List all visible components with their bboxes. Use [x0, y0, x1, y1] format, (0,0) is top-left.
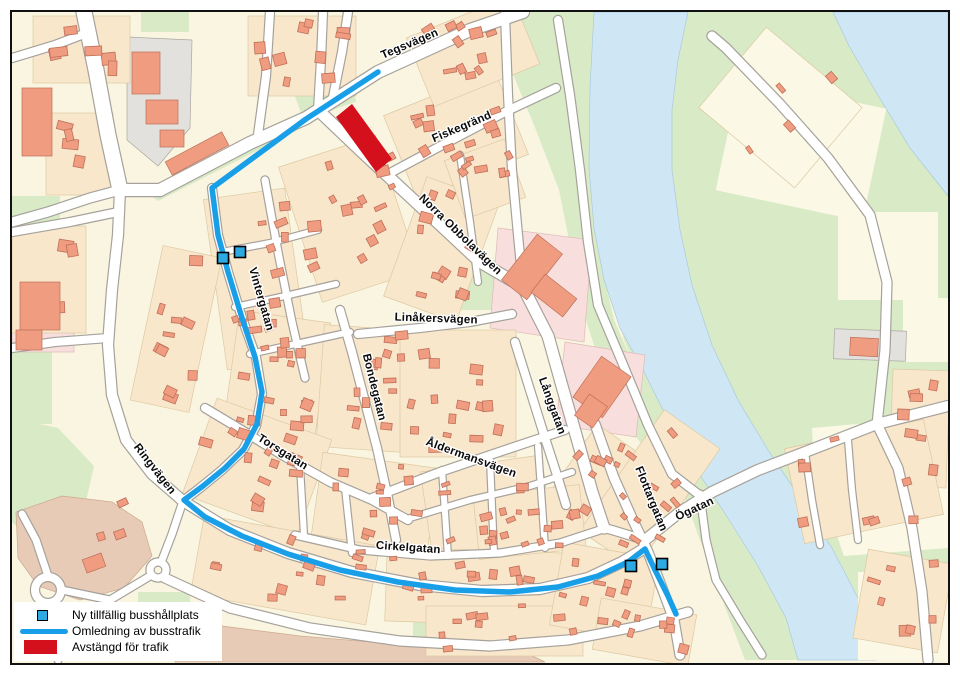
building	[551, 520, 563, 529]
building	[929, 380, 939, 391]
building	[480, 526, 488, 535]
building	[476, 613, 488, 621]
building	[544, 525, 552, 532]
building	[475, 621, 482, 628]
building	[362, 398, 370, 408]
building	[248, 326, 262, 334]
building	[443, 432, 451, 438]
building	[485, 539, 491, 543]
building	[304, 19, 313, 28]
building	[470, 435, 483, 442]
building	[509, 635, 517, 641]
building	[678, 643, 690, 654]
building	[382, 349, 391, 358]
building	[516, 510, 521, 515]
building	[419, 572, 427, 581]
building	[370, 510, 377, 517]
building	[272, 52, 286, 66]
building	[356, 564, 367, 570]
building	[398, 464, 403, 469]
field-area	[903, 298, 948, 362]
building	[850, 337, 879, 356]
building	[499, 507, 507, 515]
building	[381, 422, 393, 430]
map-legend: Ny tillfällig busshållplats Omledning av…	[14, 602, 222, 661]
building	[66, 243, 78, 257]
closed-road-legend-icon	[24, 640, 57, 654]
building	[489, 569, 498, 579]
building	[395, 331, 408, 341]
building	[482, 400, 493, 411]
building	[439, 491, 451, 496]
building	[910, 393, 923, 401]
building	[171, 317, 182, 323]
building	[418, 348, 430, 359]
building	[258, 221, 266, 226]
building	[238, 372, 250, 380]
building	[73, 155, 85, 168]
building	[280, 337, 289, 348]
building	[338, 468, 348, 477]
building	[301, 416, 313, 423]
building	[569, 509, 580, 520]
building	[516, 575, 523, 585]
building	[448, 414, 456, 424]
building	[516, 483, 528, 491]
building	[897, 409, 909, 420]
legend-item: Omledning av busstrafik	[20, 623, 218, 639]
building	[439, 632, 445, 639]
bus-stop-marker	[218, 253, 229, 264]
bus-stop-marker	[626, 561, 637, 572]
building	[356, 549, 365, 554]
building	[268, 594, 278, 601]
building	[928, 464, 938, 476]
building	[443, 645, 453, 652]
building	[623, 579, 632, 588]
building	[322, 73, 336, 84]
building	[509, 566, 521, 577]
building	[254, 42, 266, 54]
legend-label: Avstängd för trafik	[72, 640, 169, 654]
building	[417, 225, 423, 234]
building	[160, 130, 184, 147]
map-svg: TegsvägenFiskegrändNorra ObbolavägenVint…	[12, 12, 948, 663]
building	[572, 558, 579, 566]
building	[465, 71, 476, 80]
page: TegsvägenFiskegrändNorra ObbolavägenVint…	[0, 0, 960, 679]
building	[276, 584, 288, 596]
map-frame: TegsvägenFiskegrändNorra ObbolavägenVint…	[10, 10, 950, 665]
building	[426, 105, 435, 116]
building	[85, 46, 102, 56]
building	[303, 248, 317, 260]
building	[389, 517, 397, 524]
building	[64, 26, 78, 36]
building	[905, 625, 915, 635]
building	[418, 596, 424, 600]
building	[411, 509, 423, 516]
building	[553, 614, 565, 622]
building	[431, 395, 438, 404]
legend-item: Avstängd för trafik	[20, 639, 218, 655]
building	[247, 310, 255, 320]
building	[569, 628, 577, 636]
building	[341, 204, 353, 217]
building	[476, 380, 482, 386]
building	[333, 483, 339, 491]
building	[347, 405, 359, 411]
building	[189, 255, 202, 266]
building	[389, 389, 397, 394]
building	[383, 378, 396, 383]
building	[455, 561, 465, 569]
building	[659, 621, 666, 628]
building	[909, 516, 918, 524]
residential-block	[400, 330, 516, 457]
building	[397, 354, 404, 362]
legend-item: Ny tillfällig busshållplats	[20, 607, 218, 623]
building	[22, 88, 52, 156]
building	[379, 497, 390, 506]
building	[404, 476, 414, 486]
building	[132, 52, 160, 94]
building	[376, 490, 383, 494]
bus-stop-marker	[235, 247, 246, 258]
building	[499, 168, 506, 178]
building	[390, 556, 397, 561]
building	[555, 543, 563, 548]
building	[16, 330, 42, 350]
building	[49, 46, 68, 57]
green-area	[141, 12, 189, 32]
building	[929, 560, 938, 568]
building	[269, 297, 281, 308]
building	[316, 575, 325, 585]
building	[605, 587, 615, 598]
building	[307, 220, 321, 232]
building	[20, 282, 60, 330]
building	[287, 360, 294, 367]
building	[477, 53, 487, 64]
building	[621, 587, 629, 596]
detour-line-legend-icon	[20, 629, 68, 634]
building	[493, 424, 504, 436]
building	[146, 100, 178, 124]
green-area	[12, 346, 52, 424]
building	[470, 364, 484, 375]
building	[634, 615, 640, 622]
building	[423, 121, 435, 132]
building	[410, 426, 418, 434]
building	[315, 51, 326, 63]
building	[283, 77, 291, 87]
building	[528, 509, 540, 515]
building	[453, 619, 461, 624]
bus-stop-marker	[657, 559, 668, 570]
building	[281, 232, 288, 242]
building	[904, 428, 918, 438]
building	[270, 357, 278, 362]
legend-label: Ny tillfällig busshållplats	[72, 608, 199, 622]
building	[286, 351, 292, 358]
building	[929, 616, 936, 623]
building	[296, 572, 303, 577]
building	[598, 617, 609, 624]
bus-stop-legend-icon	[37, 610, 48, 621]
building	[279, 201, 290, 211]
building	[467, 571, 476, 577]
building	[799, 463, 811, 472]
building	[281, 409, 287, 415]
building	[244, 453, 252, 463]
building	[188, 371, 197, 381]
building	[797, 517, 808, 528]
building	[108, 61, 117, 76]
building	[429, 359, 439, 369]
building	[666, 617, 674, 625]
building	[335, 596, 345, 600]
building	[354, 388, 360, 397]
building	[518, 604, 525, 608]
building	[523, 576, 534, 584]
building	[296, 349, 306, 358]
building	[458, 267, 468, 277]
legend-label: Omledning av busstrafik	[72, 624, 201, 638]
